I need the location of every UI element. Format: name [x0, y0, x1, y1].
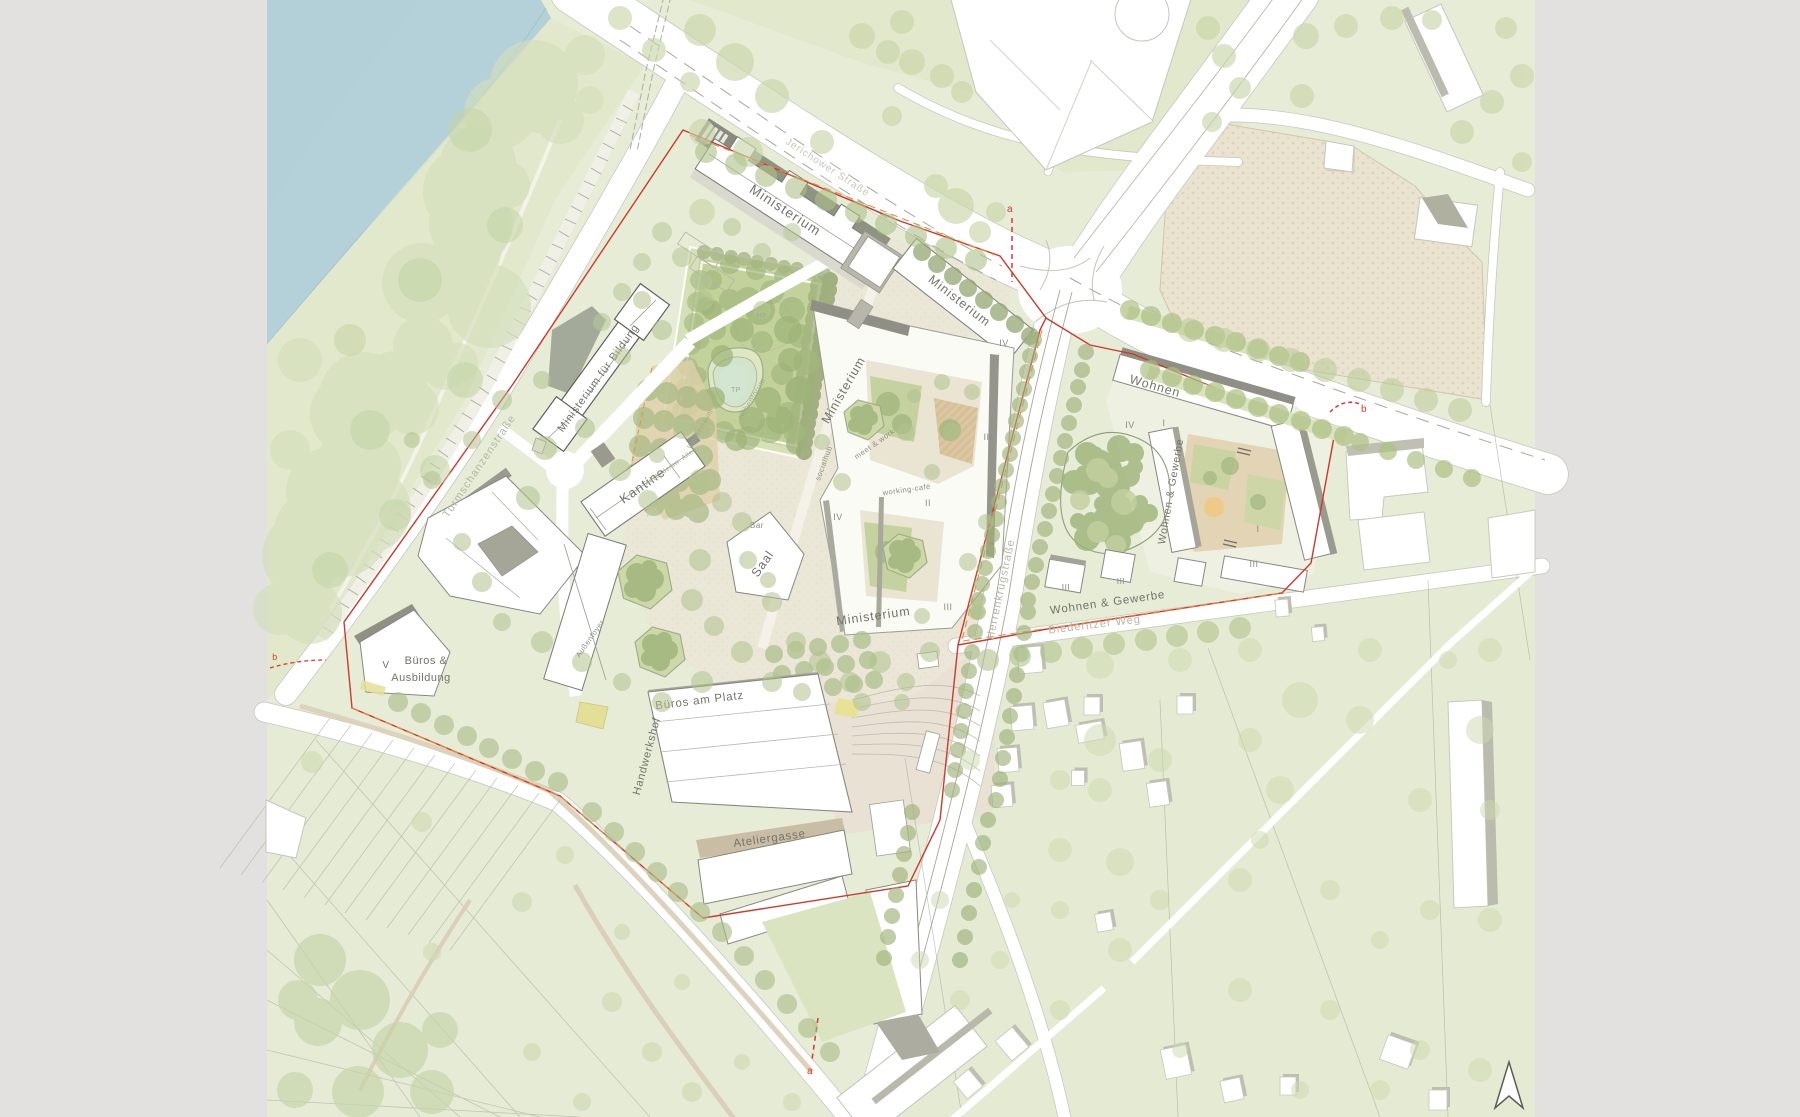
svg-text:a: a	[807, 1066, 813, 1077]
svg-text:b: b	[272, 652, 278, 662]
svg-text:I: I	[1256, 524, 1259, 534]
svg-text:IV: IV	[833, 512, 843, 522]
svg-text:I: I	[1162, 418, 1165, 428]
svg-text:Büros &: Büros &	[405, 655, 448, 667]
svg-text:II: II	[925, 498, 931, 508]
svg-text:b: b	[1361, 404, 1367, 415]
svg-text:III: III	[1062, 582, 1071, 592]
svg-text:IV: IV	[999, 338, 1009, 348]
svg-text:IV: IV	[1125, 420, 1135, 430]
svg-text:III: III	[1249, 559, 1258, 569]
svg-text:V: V	[382, 660, 389, 671]
svg-text:a: a	[1007, 204, 1013, 215]
svg-text:III: III	[1117, 576, 1126, 586]
svg-text:TP: TP	[731, 387, 741, 394]
svg-text:III: III	[983, 432, 992, 442]
svg-text:III: III	[943, 602, 952, 612]
svg-text:Ausbildung: Ausbildung	[391, 672, 450, 684]
svg-text:Bar: Bar	[750, 521, 764, 530]
svg-text:HP: HP	[757, 313, 768, 320]
